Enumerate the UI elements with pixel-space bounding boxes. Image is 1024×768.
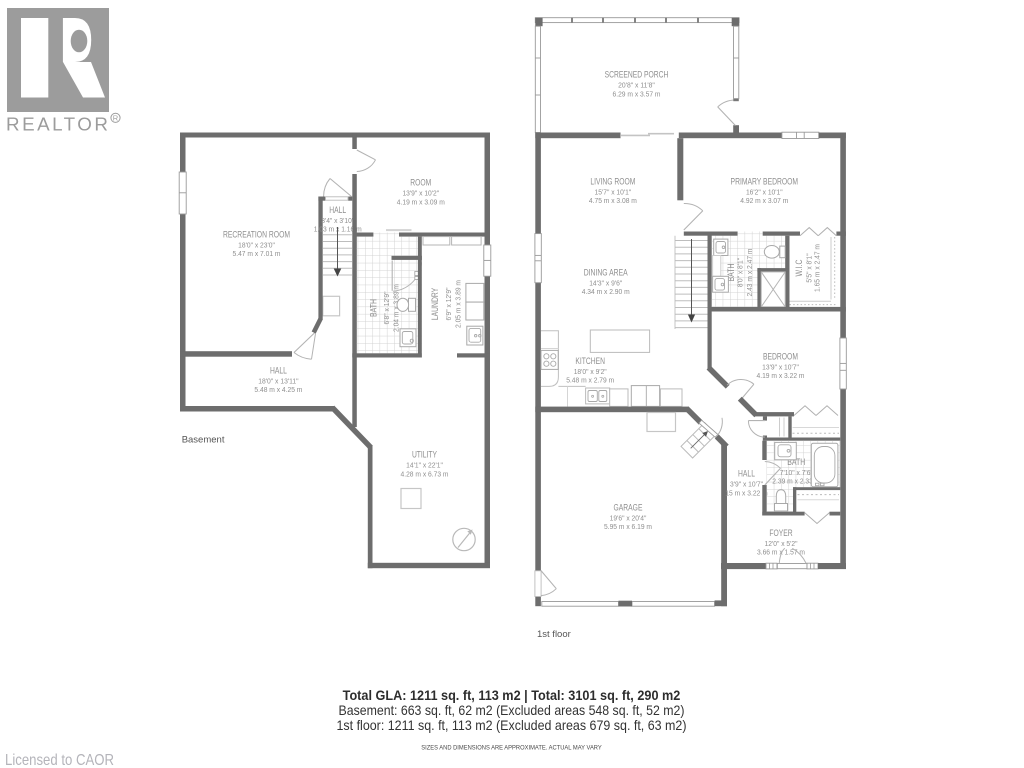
- svg-text:SIZES AND DIMENSIONS ARE APPRO: SIZES AND DIMENSIONS ARE APPROXIMATE. AC…: [421, 745, 602, 752]
- svg-text:2.43 m x 2.47 m: 2.43 m x 2.47 m: [745, 249, 754, 297]
- svg-text:6'9" x 12'9": 6'9" x 12'9": [444, 287, 453, 320]
- svg-text:GARAGE: GARAGE: [614, 502, 643, 512]
- svg-text:Total GLA: 1211 sq. ft, 113 m2: Total GLA: 1211 sq. ft, 113 m2 | Total: …: [343, 687, 681, 703]
- svg-text:4.75 m x 3.08 m: 4.75 m x 3.08 m: [589, 196, 637, 205]
- svg-text:Basement: 663 sq. ft, 62 m2 (E: Basement: 663 sq. ft, 62 m2 (Excluded ar…: [339, 703, 685, 718]
- svg-text:5.48 m x 2.79 m: 5.48 m x 2.79 m: [566, 376, 614, 385]
- svg-text:1st floor: 1211 sq. ft, 113 m2: 1st floor: 1211 sq. ft, 113 m2 (Excluded…: [337, 718, 687, 733]
- svg-text:4.19 m x 3.09 m: 4.19 m x 3.09 m: [397, 197, 445, 206]
- svg-text:DINING AREA: DINING AREA: [584, 267, 628, 277]
- svg-text:4.92 m x 3.07 m: 4.92 m x 3.07 m: [740, 196, 788, 205]
- svg-text:BATH: BATH: [369, 299, 379, 317]
- svg-text:5.48 m x 4.25 m: 5.48 m x 4.25 m: [254, 385, 302, 394]
- svg-text:4.19 m x 3.22 m: 4.19 m x 3.22 m: [757, 371, 805, 380]
- svg-text:5.47 m x 7.01 m: 5.47 m x 7.01 m: [233, 249, 281, 258]
- svg-text:Basement: Basement: [182, 434, 225, 445]
- svg-text:2.05 m x 3.89 m: 2.05 m x 3.89 m: [454, 280, 463, 328]
- svg-text:8'0" x 8'1": 8'0" x 8'1": [736, 257, 745, 287]
- svg-text:4.28 m x 6.73 m: 4.28 m x 6.73 m: [401, 469, 449, 478]
- svg-text:HALL: HALL: [270, 366, 287, 376]
- svg-text:HALL: HALL: [329, 205, 346, 215]
- svg-text:KITCHEN: KITCHEN: [575, 356, 605, 366]
- svg-text:RECREATION ROOM: RECREATION ROOM: [223, 229, 290, 239]
- svg-text:6.29 m x 3.57 m: 6.29 m x 3.57 m: [613, 89, 661, 98]
- svg-text:R: R: [113, 114, 119, 123]
- svg-text:5.95 m x 6.19 m: 5.95 m x 6.19 m: [604, 522, 652, 531]
- svg-text:4.34 m x 2.90 m: 4.34 m x 2.90 m: [582, 287, 630, 296]
- svg-text:W.I.C: W.I.C: [794, 259, 804, 276]
- svg-text:LIVING ROOM: LIVING ROOM: [590, 176, 635, 186]
- svg-text:1st floor: 1st floor: [537, 629, 571, 640]
- svg-text:Licensed to CAOR: Licensed to CAOR: [5, 752, 114, 768]
- svg-text:ROOM: ROOM: [410, 178, 431, 188]
- svg-text:BEDROOM: BEDROOM: [763, 351, 798, 361]
- svg-text:SCREENED PORCH: SCREENED PORCH: [605, 70, 669, 80]
- svg-text:6'8" x 12'9": 6'8" x 12'9": [382, 291, 391, 324]
- svg-text:FOYER: FOYER: [769, 528, 793, 538]
- svg-text:PRIMARY BEDROOM: PRIMARY BEDROOM: [731, 176, 799, 186]
- svg-text:LAUNDRY: LAUNDRY: [430, 288, 440, 320]
- svg-text:15 m x 3.22 m: 15 m x 3.22 m: [725, 488, 767, 497]
- svg-text:UTILITY: UTILITY: [412, 450, 437, 460]
- svg-text:1.65 m x 2.47 m: 1.65 m x 2.47 m: [813, 244, 822, 292]
- svg-text:REALTOR: REALTOR: [6, 114, 110, 135]
- svg-text:HALL: HALL: [738, 469, 755, 479]
